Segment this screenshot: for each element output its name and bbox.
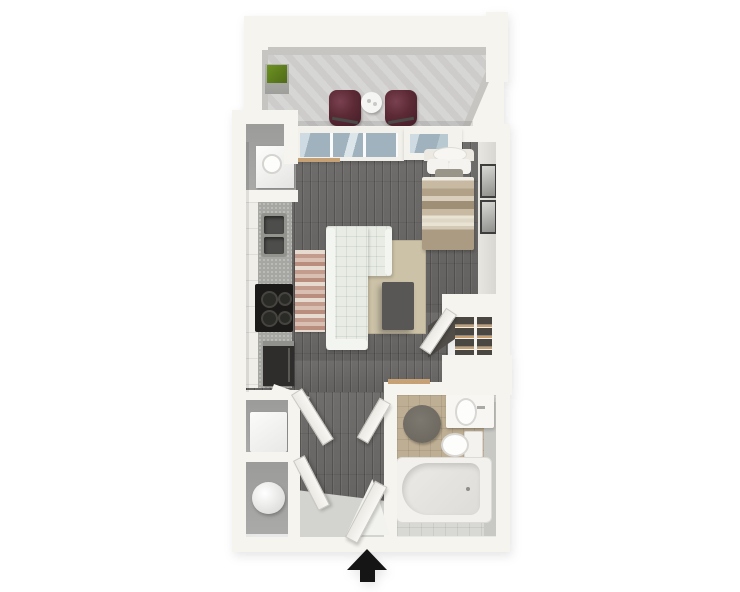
sofa-back-cushion — [326, 228, 335, 348]
stove-burner-4 — [278, 311, 292, 325]
bathtub-drain — [466, 487, 470, 491]
wall-art-1 — [480, 164, 497, 198]
refrigerator-top-edge — [263, 341, 294, 346]
planter-plant — [267, 65, 287, 83]
bed-duvet — [422, 177, 474, 250]
sink-basin-1 — [264, 216, 284, 234]
floorplan-canvas — [0, 0, 740, 592]
bathroom-wall-cap — [388, 379, 430, 384]
ottoman-coffee-table — [382, 282, 414, 330]
water-heater — [252, 482, 285, 514]
sliding-door-sill — [296, 158, 340, 162]
balcony-top-wall-edge — [264, 47, 500, 55]
round-bath-rug — [403, 405, 441, 443]
arrow-up-stem — [360, 570, 375, 582]
runner-rug — [295, 250, 325, 332]
refrigerator-handle — [288, 348, 290, 382]
wall-art-2 — [480, 200, 497, 234]
utility-appliance-lid — [262, 154, 282, 174]
toilet-bowl — [441, 433, 469, 457]
outer-wall-left — [232, 112, 246, 552]
stove-burner-2 — [278, 292, 292, 306]
sink-basin-2 — [264, 237, 284, 254]
table-cups — [367, 99, 371, 103]
washer-unit — [250, 412, 287, 452]
vanity-sink — [455, 398, 477, 426]
balcony-top-wall — [244, 16, 506, 50]
balcony-right-wall — [486, 12, 508, 82]
patio-side-table — [361, 92, 382, 113]
wardrobe-divider — [474, 317, 477, 359]
apartment-unit — [0, 0, 740, 592]
balcony-floor — [263, 54, 498, 127]
sofa-arm-right — [385, 229, 392, 275]
sliding-door-glass — [300, 133, 398, 157]
stove-burner-1 — [261, 291, 278, 308]
left-wall-shadow — [246, 142, 249, 392]
stove-burner-3 — [261, 310, 278, 327]
arrow-up-icon — [347, 549, 387, 570]
vanity-faucet — [477, 406, 485, 409]
outer-wall-right — [496, 124, 510, 552]
